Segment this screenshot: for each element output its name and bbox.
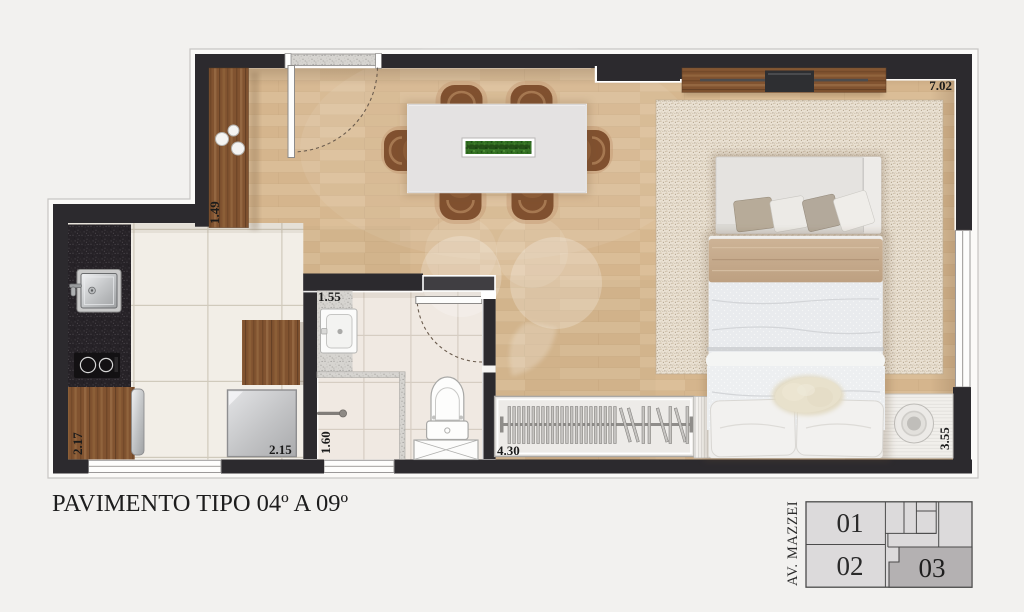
svg-text:2.15: 2.15 [269,442,292,457]
svg-text:2.17: 2.17 [70,432,85,455]
svg-text:3.55: 3.55 [937,427,952,450]
svg-text:4.30: 4.30 [497,443,520,458]
svg-text:7.02: 7.02 [929,78,952,93]
svg-text:03: 03 [919,553,946,583]
svg-text:1.55: 1.55 [318,289,341,304]
svg-text:1.60: 1.60 [318,431,333,454]
svg-text:1.49: 1.49 [207,201,222,224]
svg-text:PAVIMENTO TIPO 04º A 09º: PAVIMENTO TIPO 04º A 09º [52,490,349,517]
svg-text:AV. MAZZEI: AV. MAZZEI [785,501,801,586]
svg-text:02: 02 [837,551,864,581]
svg-text:01: 01 [837,508,864,538]
